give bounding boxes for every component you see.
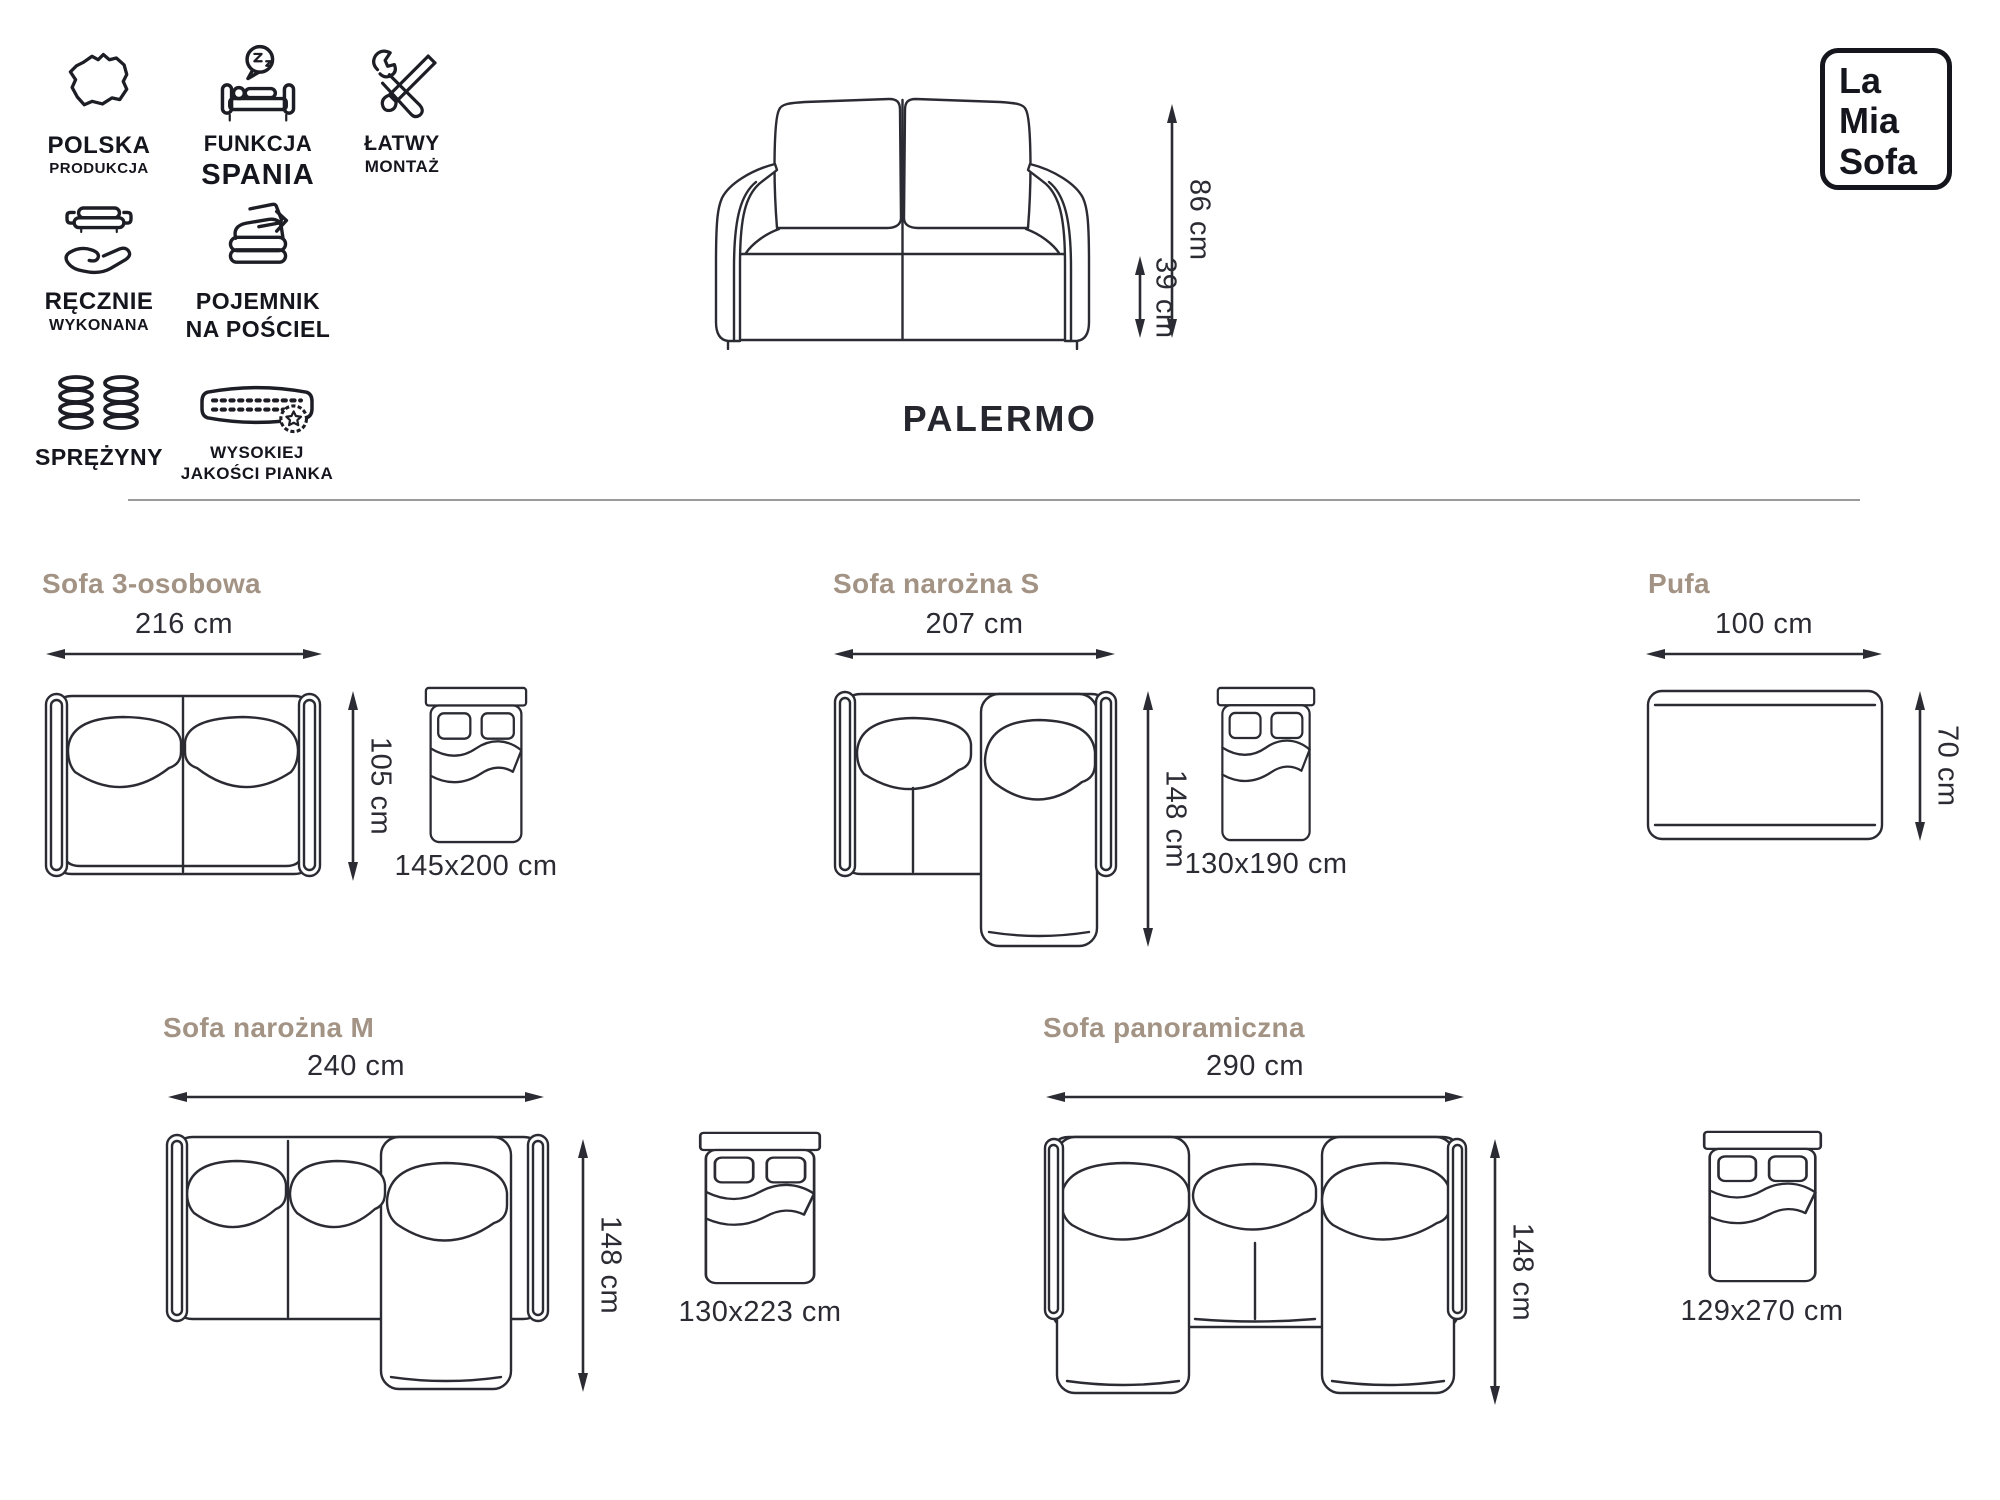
badge-label: ŁATWY [364, 131, 440, 157]
width-dimension-arrow [833, 645, 1116, 663]
sofa-top-view-drawing [1043, 1131, 1468, 1401]
badge-funkcja-spania: FUNKCJA SPANIA [178, 42, 338, 193]
brand-logo-line: La [1839, 61, 1947, 101]
badge-label: WYSOKIEJ [210, 443, 304, 464]
width-dimension-label: 240 cm [167, 1050, 545, 1083]
poland-map-icon [60, 49, 138, 119]
depth-dimension-arrow [1486, 1138, 1504, 1406]
product-title: PALERMO [820, 398, 1180, 440]
badge-sublabel: JAKOŚCI PIANKA [181, 464, 333, 485]
bed-size-icon [424, 686, 528, 844]
bed-size-label: 129x270 cm [1662, 1295, 1862, 1328]
bed-size-label: 130x223 cm [660, 1296, 860, 1329]
badge-label: POJEMNIK [196, 287, 320, 315]
badge-recznie-wykonana: RĘCZNIE WYKONANA [28, 198, 170, 336]
depth-dimension-arrow [574, 1138, 592, 1393]
variant-heading: Sofa narożna S [833, 568, 1039, 600]
badge-label: SPRĘŻYNY [35, 443, 163, 471]
bedding-container-icon [218, 198, 298, 282]
depth-dimension-arrow [344, 690, 362, 882]
bed-size-icon [1216, 686, 1316, 842]
sleep-function-icon [217, 42, 299, 126]
badge-label: POLSKA [47, 131, 150, 160]
depth-dimension-arrow [1911, 690, 1929, 842]
depth-dimension-label: 148 cm [1504, 1138, 1540, 1406]
depth-dimension-label: 70 cm [1929, 690, 1965, 842]
width-dimension-label: 290 cm [1045, 1050, 1465, 1083]
badge-sprezyny: SPRĘŻYNY [28, 372, 170, 471]
badge-polska-produkcja: POLSKA PRODUKCJA [28, 42, 170, 179]
foam-quality-icon [192, 372, 322, 438]
variant-heading: Sofa panoramiczna [1043, 1012, 1305, 1044]
sofa-top-view-drawing [42, 688, 324, 882]
divider [128, 499, 1860, 501]
variant-heading: Sofa 3-osobowa [42, 568, 261, 600]
sofa-top-view-drawing [833, 688, 1118, 950]
variant-heading: Pufa [1648, 568, 1710, 600]
brand-logo-line: Sofa [1839, 142, 1947, 182]
width-dimension-arrow [1645, 645, 1883, 663]
brand-logo-line: Mia [1839, 101, 1947, 141]
width-dimension-arrow [1045, 1088, 1465, 1106]
badge-sublabel: SPANIA [201, 158, 314, 193]
pouf-top-view-drawing [1645, 688, 1885, 842]
bed-size-icon [1702, 1130, 1823, 1283]
sofa-top-view-drawing [165, 1131, 550, 1393]
width-dimension-arrow [45, 645, 323, 663]
badge-sublabel: PRODUKCJA [49, 160, 149, 178]
badge-latwy-montaz: ŁATWY MONTAŻ [344, 42, 460, 177]
bed-size-label: 130x190 cm [1166, 848, 1366, 881]
spec-sheet: POLSKA PRODUKCJA FUNKCJA SPANIA ŁATWY [0, 0, 2000, 1500]
bed-size-label: 145x200 cm [376, 850, 576, 883]
hero-sofa-front-drawing [695, 58, 1110, 350]
depth-dimension-label: 148 cm [592, 1138, 628, 1393]
depth-dimension-arrow [1139, 690, 1157, 948]
badge-sublabel: WYKONANA [49, 316, 149, 336]
width-dimension-label: 207 cm [833, 608, 1116, 641]
springs-icon [49, 374, 149, 436]
badge-label: FUNKCJA [204, 131, 313, 158]
width-dimension-label: 100 cm [1645, 608, 1883, 641]
bed-size-icon [698, 1131, 822, 1285]
total-height-arrow [1163, 103, 1181, 339]
width-dimension-label: 216 cm [45, 608, 323, 641]
width-dimension-arrow [167, 1088, 545, 1106]
depth-dimension-label: 148 cm [1157, 690, 1193, 948]
badge-pojemnik-na-posciel: POJEMNIK NA POŚCIEL [176, 198, 340, 343]
badge-sublabel: MONTAŻ [365, 157, 439, 178]
variant-heading: Sofa narożna M [163, 1012, 374, 1044]
handmade-icon [59, 198, 139, 282]
brand-logo: La Mia Sofa [1820, 48, 1952, 190]
badge-sublabel: NA POŚCIEL [186, 315, 331, 343]
tools-icon [364, 46, 440, 122]
badge-label: RĘCZNIE [45, 287, 154, 316]
total-height-label: 86 cm [1181, 140, 1217, 300]
badge-wysokiej-jakosci-pianka: WYSOKIEJ JAKOŚCI PIANKA [162, 372, 352, 484]
